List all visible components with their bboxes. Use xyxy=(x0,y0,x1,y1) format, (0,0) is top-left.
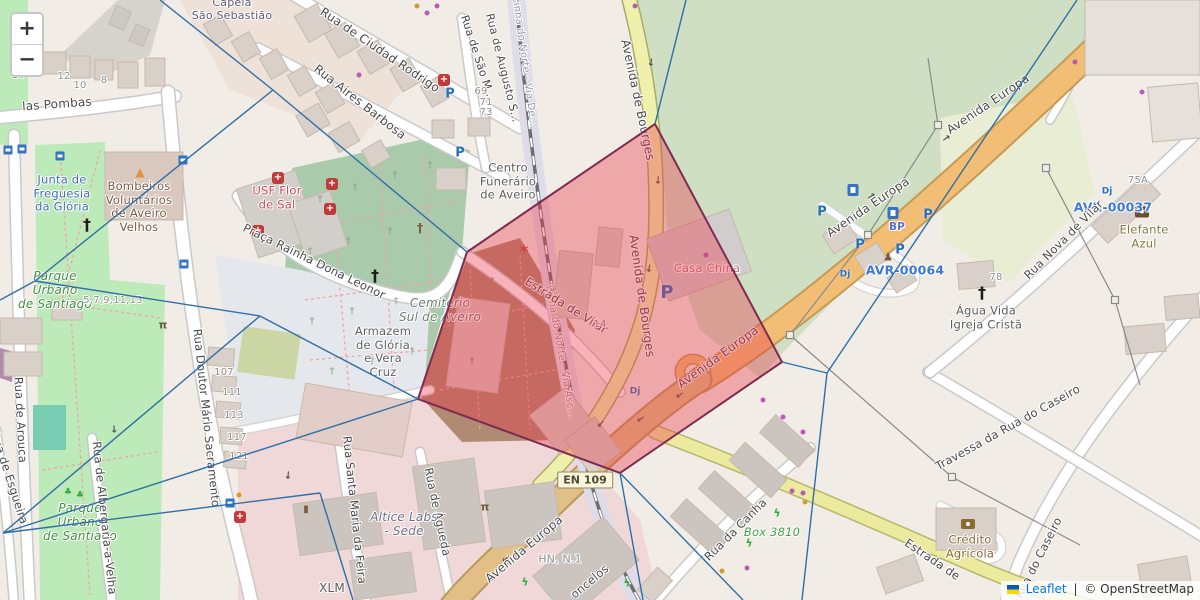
fuel-icon xyxy=(888,207,899,219)
oneway-arrow: → xyxy=(645,57,656,67)
marker-avr-00064: AVR-00064 xyxy=(866,264,945,279)
parking-icon: P xyxy=(455,147,465,160)
hospital-icon: + xyxy=(324,203,336,215)
shop-dot-orange xyxy=(415,4,420,9)
pharmacy-icon: + xyxy=(234,511,246,523)
bus-stop-icon xyxy=(4,146,13,155)
housenumber: 10 xyxy=(73,80,86,92)
shop-dot-purple xyxy=(425,11,430,16)
fitness-icon: ϟ xyxy=(623,578,630,589)
shop-dot-purple xyxy=(1073,60,1078,65)
poi-altice-labs: Altice Labs - Sede xyxy=(370,510,438,538)
housenumber: 113 xyxy=(224,410,244,422)
poi-box-3810: Box 3810 xyxy=(744,526,800,540)
housenumber: 73 xyxy=(479,107,492,119)
fitness-icon: ϟ xyxy=(521,577,528,588)
shop-dot-purple xyxy=(435,4,440,9)
leaflet-link[interactable]: Leaflet xyxy=(1026,582,1067,596)
monument-icon: ▮ xyxy=(303,505,309,515)
shop-dot-purple xyxy=(357,73,362,78)
poi-xlm: XLM xyxy=(319,581,345,595)
leaflet-map[interactable]: las PombasCapela São SebastiãoRua de Ciu… xyxy=(0,0,1200,600)
grave-cross-green: † xyxy=(353,183,358,193)
housenumber: 8 xyxy=(101,75,108,87)
shop-dot-purple xyxy=(633,4,638,9)
grave-cross-green: † xyxy=(330,367,335,377)
parking-icon: P xyxy=(923,209,933,222)
poi-junta-freguesia: Junta de Freguesia da Glória xyxy=(33,174,90,215)
bank-icon xyxy=(961,519,975,529)
grave-cross-brown: † xyxy=(520,317,525,327)
fuel-icon xyxy=(848,184,859,196)
bus-stop-icon xyxy=(179,156,188,165)
bus-stop-icon xyxy=(226,499,235,508)
oneway-arrow: → xyxy=(282,470,293,479)
monument-cross-icon: † xyxy=(417,222,423,234)
poi-hn-n1: HN, N.1 xyxy=(538,554,582,567)
poi-capela-sao-sebastiao: Capela São Sebastião xyxy=(192,0,273,23)
shop-dot-purple xyxy=(704,253,709,258)
parking-icon: P xyxy=(855,239,865,252)
charging-icon: Dj xyxy=(630,388,641,397)
grave-cross-green: † xyxy=(318,195,323,205)
poi-bombeiros: Bombeiros Voluntários de Aveiro Velhos xyxy=(106,180,173,234)
poi-usf-flor-de-sal: USF Flor de Sal xyxy=(252,184,301,211)
grave-cross-brown: † xyxy=(490,277,495,287)
grave-cross-green: † xyxy=(388,227,393,237)
grave-cross-brown: † xyxy=(510,387,515,397)
shop-dot-orange xyxy=(803,500,808,505)
oneway-arrow: → xyxy=(652,175,663,184)
bus-stop-icon xyxy=(56,152,65,161)
zoom-control: + − xyxy=(10,12,44,77)
zoom-out-button[interactable]: − xyxy=(12,45,42,75)
shop-dot-purple xyxy=(1140,90,1145,95)
oneway-arrow: → xyxy=(108,425,118,434)
parking-icon: P xyxy=(817,206,827,219)
housenumber: 121 xyxy=(229,451,249,463)
parking-icon: P xyxy=(660,284,673,302)
playground-icon: ♣ xyxy=(76,492,84,501)
charging-icon: Dj xyxy=(840,271,851,280)
shop-dot-orange xyxy=(720,569,725,574)
parking-icon: P xyxy=(445,88,455,101)
bus-stop-icon xyxy=(18,145,27,154)
shop-dot-purple xyxy=(801,430,806,435)
church-cross-icon: † xyxy=(978,285,986,301)
housenumber: 107 xyxy=(214,367,234,379)
poi-agua-vida: Água Vida Igreja Cristã xyxy=(950,304,1022,331)
shop-dot-purple xyxy=(790,489,795,494)
church-cross-icon: † xyxy=(83,217,91,233)
grave-cross-green: † xyxy=(346,237,351,247)
poi-casa-china: Casa China xyxy=(674,262,741,276)
shop-dot-orange xyxy=(237,493,242,498)
poi-bp: BP xyxy=(889,221,905,233)
housenumber: 78 xyxy=(989,272,1002,284)
ukraine-flag-icon xyxy=(1007,585,1019,594)
shop-dot-purple xyxy=(781,415,786,420)
grave-cross-green: † xyxy=(428,161,433,171)
grave-cross-green: † xyxy=(393,171,398,181)
shop-dot-purple xyxy=(801,491,806,496)
poi-elefante-azul: Elefante Azul xyxy=(1119,223,1168,250)
poi-centro-funerario: Centro Funerário de Aveiro xyxy=(480,162,536,203)
playground-icon: ♣ xyxy=(64,489,72,498)
poi-cemiterio-sul: Cemitério Sul de Aveiro xyxy=(399,296,481,324)
shop-dot-purple xyxy=(761,398,766,403)
poi-armazem: Armazem de Glória e Vera Cruz xyxy=(355,325,411,379)
housenumber: 117 xyxy=(227,432,247,444)
housenumber: 12 xyxy=(57,71,70,83)
poi-parque-santiago-1: Parque Urbano de Santiago xyxy=(18,269,92,311)
attribution-bar: Leaflet | © OpenStreetMap xyxy=(1001,581,1200,600)
poi-credito-agricola: Crédito Agrícola xyxy=(946,533,994,560)
housenumber: 14 xyxy=(593,319,606,331)
parking-icon: P xyxy=(895,244,905,257)
charging-icon: Dj xyxy=(1102,188,1113,197)
hospital-icon: + xyxy=(272,172,284,184)
housenumber: 75A xyxy=(1128,175,1148,187)
shop-dot-purple xyxy=(745,566,750,571)
hospital-icon: + xyxy=(326,178,338,190)
fitness-icon: ϟ xyxy=(773,508,780,519)
openstreetmap-link[interactable]: © OpenStreetMap xyxy=(1084,582,1194,596)
grave-cross-green: † xyxy=(310,317,315,327)
level-crossing-icon: * xyxy=(520,245,529,262)
picnic-icon: π xyxy=(481,502,490,513)
road-ref-badge: EN 109 xyxy=(557,472,613,489)
bus-stop-icon xyxy=(180,260,189,269)
zoom-in-button[interactable]: + xyxy=(12,14,42,45)
fire-station-icon: ▲ xyxy=(135,166,144,178)
grave-cross-green: † xyxy=(350,307,355,317)
housenumbers-5-13: 5,7,9,11,13 xyxy=(83,295,142,307)
attribution-separator: | xyxy=(1073,582,1077,596)
statue-icon: ♟ xyxy=(883,252,893,263)
grave-cross-green: † xyxy=(394,297,399,307)
picnic-icon: π xyxy=(159,320,168,331)
grave-cross-brown: † xyxy=(470,357,475,367)
grave-cross-brown: † xyxy=(540,347,545,357)
housenumber: 111 xyxy=(222,387,242,399)
